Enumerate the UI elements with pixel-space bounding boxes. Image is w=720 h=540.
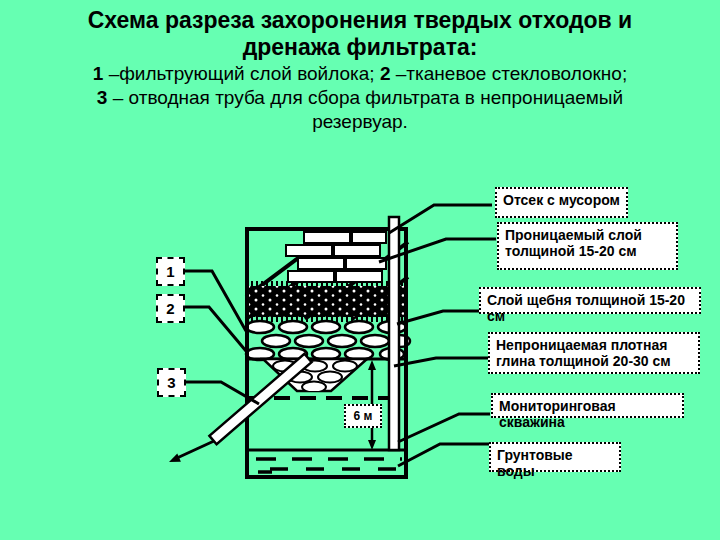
legend-item-2-number: 2 (380, 63, 391, 84)
gravel-layer (246, 321, 410, 360)
legend-item-3-text: – отводная труба для сбора фильтрата в н… (113, 87, 623, 132)
callout-label-groundwater: Грунтовые воды (489, 442, 621, 472)
callout-label-gravel-layer: Слой щебня толщиной 15-20 см (479, 287, 701, 314)
monitoring-well-pipe (389, 217, 399, 450)
felt-layer (246, 284, 407, 319)
number-box-2: 2 (156, 294, 185, 323)
callout-label-permeable-layer: Проницаемый слой толщиной 15-20 см (497, 222, 678, 270)
legend-item-2-text: –тканевое стекловолокно; (396, 63, 627, 84)
number-box-3: 3 (157, 368, 186, 397)
waste-bricks (286, 232, 386, 282)
legend-line-1: 1 –фильтрующий слой войлока; 2 –тканевое… (0, 62, 720, 86)
legend-line-2: 3 – отводная труба для сбора фильтрата в… (80, 86, 640, 134)
groundwater-area (246, 450, 407, 472)
dimension-label: 6 м (344, 404, 382, 428)
legend: 1 –фильтрующий слой войлока; 2 –тканевое… (0, 62, 720, 134)
slide: Схема разреза захоронения твердых отходо… (0, 0, 720, 540)
slide-title-line2: дренажа фильтрата: (0, 34, 720, 61)
legend-item-3-number: 3 (97, 87, 108, 108)
drainage-pipe (169, 354, 312, 462)
slide-title-line1: Схема разреза захоронения твердых отходо… (0, 7, 720, 34)
number-box-1: 1 (156, 257, 185, 286)
callout-label-clay-layer: Непроницаемая плотная глина толщиной 20-… (488, 332, 700, 374)
legend-item-1-number: 1 (93, 63, 104, 84)
slide-title: Схема разреза захоронения твердых отходо… (0, 7, 720, 61)
callout-label-waste-compartment: Отсек с мусором (495, 187, 628, 218)
legend-item-1-text: –фильтрующий слой войлока; (109, 63, 375, 84)
callout-label-monitoring-well: Мониторинговая скважина (491, 393, 684, 418)
